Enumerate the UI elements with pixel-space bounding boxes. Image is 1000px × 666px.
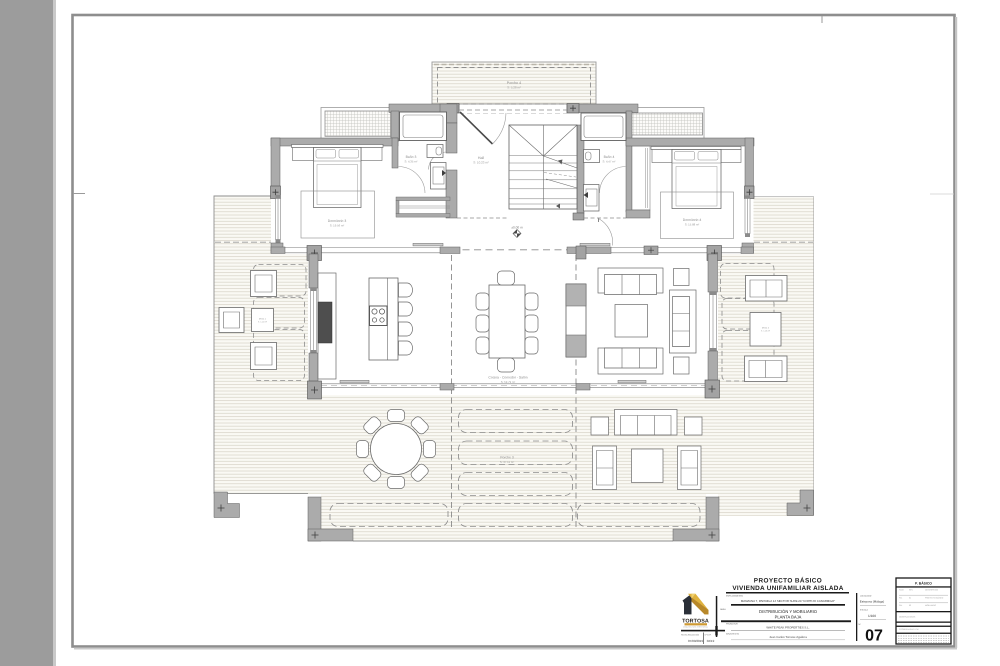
- svg-text:Juan Carlos Tornese Aguilera: Juan Carlos Tornese Aguilera: [769, 635, 807, 639]
- svg-text:Nº EXP.: Nº EXP.: [705, 633, 712, 636]
- svg-text:COORDENADAS UTM: COORDENADAS UTM: [899, 628, 919, 631]
- svg-text:Porche 4: Porche 4: [507, 81, 521, 85]
- svg-text:07/09/2019: 07/09/2019: [688, 639, 703, 643]
- svg-text:MOBILIARIO: MOBILIARIO: [925, 604, 937, 607]
- svg-text:Mesa 2: Mesa 2: [762, 327, 770, 330]
- svg-text:Estepona (Málaga): Estepona (Málaga): [860, 600, 884, 604]
- svg-text:Mesa 1: Mesa 1: [259, 318, 267, 321]
- svg-text:OBRA: OBRA: [720, 608, 726, 611]
- svg-text:Dormitorio 4: Dormitorio 4: [683, 218, 702, 222]
- svg-text:PROYECTO BÁSICO: PROYECTO BÁSICO: [754, 577, 822, 585]
- svg-text:±0.00 m: ±0.00 m: [511, 226, 523, 230]
- svg-text:Hall: Hall: [478, 156, 484, 160]
- svg-text:FASE: FASE: [899, 589, 905, 592]
- svg-text:1/100: 1/100: [868, 614, 876, 618]
- svg-text:P. BÁSICO: P. BÁSICO: [915, 582, 932, 586]
- svg-text:Dormitorio 3: Dormitorio 3: [328, 219, 347, 223]
- svg-text:02: 02: [909, 604, 911, 607]
- svg-text:FECHA REDACCIÓN: FECHA REDACCIÓN: [681, 633, 700, 636]
- svg-text:07: 07: [865, 628, 883, 645]
- svg-text:01: 01: [909, 597, 911, 600]
- svg-text:ARQUITECTO: ARQUITECTO: [726, 633, 740, 636]
- svg-text:OBSERVACIONES: OBSERVACIONES: [899, 616, 916, 619]
- svg-text:PLANTA BAJA: PLANTA BAJA: [775, 615, 802, 620]
- svg-text:S: 37.11 m²: S: 37.11 m²: [500, 460, 514, 464]
- svg-text:P.B.: P.B.: [899, 604, 903, 607]
- svg-text:Baño 3: Baño 3: [406, 155, 417, 159]
- svg-text:Baño 4: Baño 4: [604, 155, 615, 159]
- svg-text:VIVIENDA UNIFAMILIAR AISLADA: VIVIENDA UNIFAMILIAR AISLADA: [732, 585, 843, 592]
- svg-text:DISTRIBUCIÓN Y MOBILIARIO: DISTRIBUCIÓN Y MOBILIARIO: [759, 609, 817, 614]
- svg-text:EMPLAZAMIENTO: EMPLAZAMIENTO: [726, 595, 744, 598]
- svg-text:S: 10.23 m²: S: 10.23 m²: [473, 161, 489, 165]
- svg-text:Porche 3: Porche 3: [500, 456, 514, 460]
- svg-text:DESCRIPCIÓN: DESCRIPCIÓN: [925, 589, 939, 592]
- svg-text:Nº: Nº: [859, 623, 861, 626]
- svg-text:LOCALIDAD: LOCALIDAD: [860, 595, 872, 598]
- svg-text:S: 1.16 m²: S: 1.16 m²: [761, 330, 771, 333]
- svg-text:S: 15.88 m²: S: 15.88 m²: [685, 223, 700, 227]
- svg-text:Cocina - Comedor - Salón: Cocina - Comedor - Salón: [488, 376, 527, 380]
- svg-text:PROYECTO BÁSICO: PROYECTO BÁSICO: [925, 597, 944, 600]
- svg-text:S: 1.10 m²: S: 1.10 m²: [258, 321, 268, 324]
- svg-text:MANZANA 7, PARCELA 14 SECTOR S: MANZANA 7, PARCELA 14 SECTOR SUR2-20 "CO…: [741, 599, 835, 603]
- svg-text:S: 4.35 m²: S: 4.35 m²: [405, 160, 418, 164]
- svg-text:S: 59.79 m²: S: 59.79 m²: [501, 380, 516, 384]
- svg-text:P.B.: P.B.: [899, 597, 903, 600]
- svg-text:S: 19.56 m²: S: 19.56 m²: [330, 224, 345, 228]
- svg-text:PROMOTOR: PROMOTOR: [726, 623, 738, 626]
- svg-text:04/19: 04/19: [707, 639, 715, 643]
- svg-text:S: 4.47 m²: S: 4.47 m²: [603, 160, 616, 164]
- svg-text:S: 5.28 m²: S: 5.28 m²: [507, 86, 521, 90]
- svg-text:ESCALA: ESCALA: [860, 609, 869, 612]
- svg-text:ARQUITECTURA TERRITORIAL: ARQUITECTURA TERRITORIAL: [683, 626, 708, 629]
- svg-text:WHITE PEAK PROPERTIES S.L.: WHITE PEAK PROPERTIES S.L.: [766, 625, 809, 629]
